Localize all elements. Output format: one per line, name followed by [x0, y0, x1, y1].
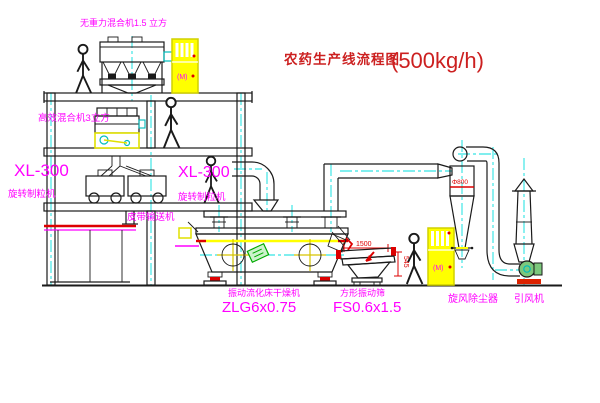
granulator-left-name: 旋转制粒机 [8, 188, 56, 200]
sight-circle [217, 239, 249, 271]
vibrating-fluid-bed-dryer [175, 211, 352, 285]
belt-conveyor [44, 211, 138, 282]
dryer-model-label: ZLG6x0.75 [222, 299, 296, 316]
control-cabinet-ground: (M) [428, 228, 454, 285]
rotary-granulator-left [86, 170, 124, 203]
granulator-mid-model: XL-300 [178, 164, 230, 181]
indicator-dot [193, 55, 196, 58]
induced-draft-fan [517, 261, 542, 284]
screen-model-label: FS0.6x1.5 [333, 299, 401, 316]
flow-diagram: (M) [0, 0, 600, 403]
dim-height-text: 545 [402, 256, 409, 268]
sight-circle [294, 239, 326, 271]
indicator-dot [449, 266, 452, 269]
person-icon [76, 45, 91, 93]
granulator-feed-duct [101, 156, 152, 176]
high-eff-mixer-label: 高效混合机3立方 [38, 112, 110, 124]
screen-name-label: 方形振动筛 [340, 287, 385, 298]
belt-drive-guard [95, 133, 139, 148]
belt-conveyor-label: 皮带输送机 [127, 211, 175, 223]
dryer-name-label: 振动流化床干燥机 [228, 287, 300, 298]
dim-length-text: 1500 [356, 241, 372, 248]
cyclone-marking-text: Φ800 [452, 179, 468, 186]
person-icon [164, 98, 180, 148]
cad-drawing-canvas: (M) [0, 0, 600, 403]
spring-support [204, 272, 226, 285]
control-cabinet-top: (M) [172, 39, 198, 93]
panel-mark: (M) [433, 265, 444, 272]
gravity-mixer-label: 无重力混合机1.5 立方 [80, 17, 167, 28]
drawing-title: 农药生产线流程图 [283, 51, 400, 67]
capacity-label: (500kg/h) [391, 48, 484, 73]
cyclone-label: 旋风除尘器 [448, 292, 498, 305]
spring-support [314, 272, 336, 285]
square-vibrating-screen: 1500 545 [328, 226, 409, 285]
indicator-dot [192, 75, 195, 78]
granulator-left-model: XL-300 [14, 161, 69, 180]
person-icon [407, 234, 423, 284]
granulator-mid-name: 旋转制粒机 [178, 191, 226, 203]
fan-base [517, 279, 541, 284]
fan-label: 引风机 [514, 292, 544, 305]
dimension-545: 545 [394, 252, 409, 276]
indicator-dot [448, 232, 451, 235]
gravity-free-mixer [100, 37, 183, 93]
panel-mark: (M) [177, 74, 188, 81]
rotary-granulator-mid [128, 170, 166, 203]
maker-logo [247, 244, 268, 262]
